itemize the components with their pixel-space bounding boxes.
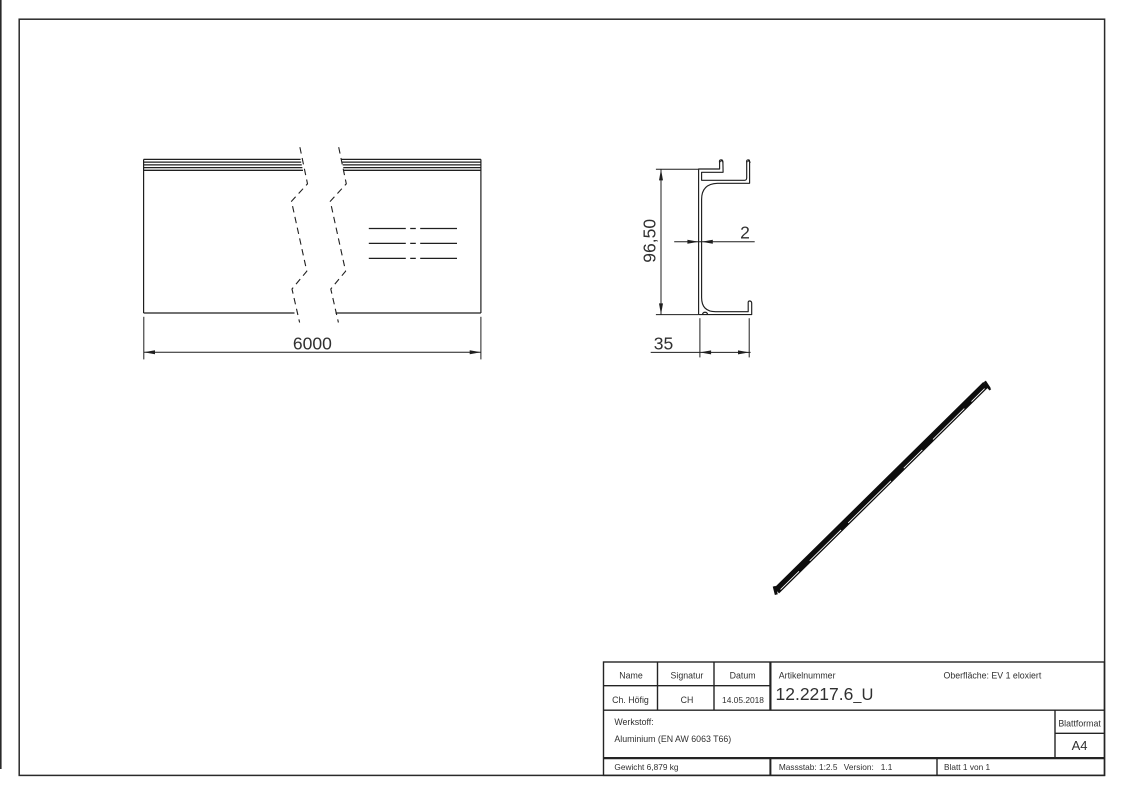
- svg-text:A4: A4: [1072, 738, 1088, 753]
- svg-text:Signatur: Signatur: [671, 671, 704, 681]
- svg-text:6000: 6000: [293, 333, 332, 353]
- svg-text:Artikelnummer: Artikelnummer: [779, 670, 836, 680]
- svg-text:Werkstoff:: Werkstoff:: [614, 717, 653, 727]
- svg-text:CH: CH: [681, 695, 694, 705]
- svg-text:Aluminium (EN AW 6063 T66): Aluminium (EN AW 6063 T66): [614, 734, 731, 744]
- svg-text:Gewicht 6,879 kg: Gewicht 6,879 kg: [614, 762, 678, 772]
- svg-text:14.05.2018: 14.05.2018: [722, 695, 764, 705]
- svg-text:Datum: Datum: [730, 670, 756, 680]
- svg-text:Blatt 1 von 1: Blatt 1 von 1: [944, 762, 991, 772]
- svg-text:Massstab: 1:2.5: Massstab: 1:2.5: [779, 762, 838, 772]
- svg-text:Name: Name: [619, 671, 643, 681]
- svg-text:Ch. Höfig: Ch. Höfig: [612, 695, 649, 705]
- svg-text:2: 2: [740, 222, 750, 242]
- svg-text:Blattformat: Blattformat: [1058, 719, 1101, 729]
- svg-text:1.1: 1.1: [881, 762, 893, 772]
- svg-text:Oberfläche: EV 1 eloxiert: Oberfläche: EV 1 eloxiert: [944, 670, 1042, 680]
- svg-text:35: 35: [654, 333, 673, 353]
- svg-text:Version:: Version:: [844, 762, 874, 772]
- svg-text:96,50: 96,50: [640, 219, 660, 263]
